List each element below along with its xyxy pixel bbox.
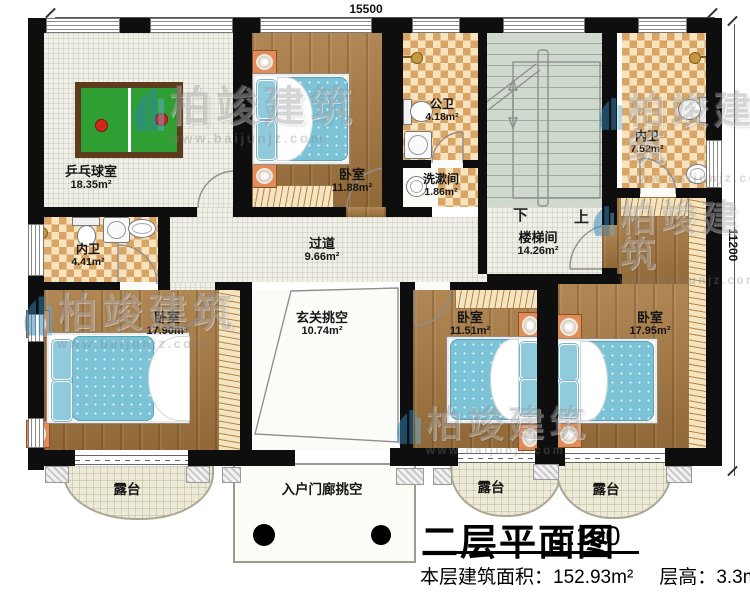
pier <box>186 466 210 483</box>
room-area: 11.88m² <box>332 182 372 195</box>
area-summary: 本层建筑面积：152.93m²层高：3.3m <box>420 562 750 589</box>
room-name: 卧室 <box>147 310 188 325</box>
room-label-washroom: 洗漱间 1.86m² <box>423 172 459 199</box>
window <box>260 18 372 33</box>
stair-railing <box>538 50 548 206</box>
room-name: 内卫 <box>630 129 663 143</box>
pier <box>666 466 692 483</box>
floor-height-value: 3.3m <box>716 567 750 588</box>
title-underline <box>423 551 639 554</box>
wall-divider <box>463 160 478 168</box>
floor-plan: 乒乓球室 18.35m² 卧室 11.88m² 公卫 4.18m² 洗漱间 1.… <box>0 0 750 596</box>
window <box>503 18 585 33</box>
room-name: 卧室 <box>332 167 372 182</box>
pier <box>45 466 69 483</box>
stair-down-label: 下 <box>513 204 528 225</box>
pier <box>533 464 559 480</box>
room-label-bedroom-top: 卧室 11.88m² <box>332 167 372 195</box>
room-area: 10.74m² <box>296 325 348 338</box>
room-name: 玄关挑空 <box>296 310 348 325</box>
porch-label: 入户门廊挑空 <box>282 478 363 498</box>
door-arc <box>570 225 605 269</box>
room-name: 内卫 <box>71 242 104 256</box>
wall-bottom <box>390 448 458 466</box>
room-name: 过道 <box>305 236 340 251</box>
window <box>638 18 687 33</box>
door-arc <box>118 245 157 284</box>
wall-divider <box>28 282 120 290</box>
dimension-line-top <box>55 17 715 18</box>
room-area: 18.35m² <box>65 179 117 192</box>
wall-divider <box>537 284 558 450</box>
room-label-bedroom-bc: 卧室 11.51m² <box>450 310 490 338</box>
area-summary-label: 本层建筑面积： <box>420 567 553 588</box>
wall-divider <box>28 207 197 217</box>
room-area: 1.86m² <box>423 186 459 198</box>
window <box>28 314 44 342</box>
room-label-bedroom-br: 卧室 17.95m² <box>630 310 671 338</box>
wall-divider <box>158 282 170 290</box>
dimension-height: 11200 <box>726 213 740 277</box>
room-area: 4.18m² <box>425 111 458 123</box>
wall-divider <box>400 282 415 290</box>
room-label-public-bath: 公卫 4.18m² <box>425 97 458 124</box>
stair-up-label: 上 <box>574 206 589 227</box>
terrace-label: 露台 <box>114 478 141 498</box>
wall-divider <box>676 188 706 198</box>
room-label-bath-right: 内卫 7.52m² <box>630 129 663 156</box>
wall-divider <box>400 290 413 450</box>
window <box>46 18 120 33</box>
room-name: 公卫 <box>425 97 458 111</box>
wall-bottom <box>28 450 75 466</box>
door-arc <box>432 132 463 163</box>
wall-divider <box>252 207 346 217</box>
room-name: 乒乓球室 <box>65 164 117 179</box>
wall-right <box>706 33 722 466</box>
room-label-bedroom-bl: 卧室 17.90m² <box>147 310 188 338</box>
wall-divider <box>617 188 640 198</box>
door-arc <box>198 171 235 208</box>
terrace-label: 露台 <box>593 478 620 498</box>
room-name: 洗漱间 <box>423 172 459 186</box>
door-arc <box>415 290 450 325</box>
plan-symbols <box>0 0 750 596</box>
wall-divider <box>158 217 170 290</box>
window <box>412 18 460 33</box>
room-label-pingpong: 乒乓球室 18.35m² <box>65 164 117 192</box>
floor-height-label: 层高： <box>659 567 716 588</box>
wall-divider <box>382 33 403 207</box>
wall-bottom <box>188 450 295 466</box>
sliding-door <box>75 455 188 465</box>
room-label-foyer-void: 玄关挑空 10.74m² <box>296 310 348 338</box>
room-area: 7.52m² <box>630 143 663 155</box>
room-label-stairwell: 楼梯间 14.26m² <box>518 230 559 258</box>
wall-divider <box>240 282 252 450</box>
stair-inner-outline <box>513 62 600 198</box>
wall-divider <box>403 160 431 168</box>
window <box>150 18 233 33</box>
room-area: 11.51m² <box>450 325 490 338</box>
room-area: 17.90m² <box>147 325 188 338</box>
area-summary-value: 152.93m² <box>553 567 633 588</box>
wall-divider <box>478 33 487 274</box>
sliding-door <box>458 453 535 463</box>
pier <box>222 467 241 483</box>
stair-break-line <box>484 64 540 110</box>
window <box>28 418 44 448</box>
wall-divider <box>602 33 617 225</box>
pier <box>433 468 452 485</box>
room-label-bath-left: 内卫 4.41m² <box>71 242 104 269</box>
room-area: 4.41m² <box>71 256 104 268</box>
room-area: 9.66m² <box>305 251 340 264</box>
wall-divider <box>487 274 622 284</box>
room-area: 14.26m² <box>518 245 559 258</box>
room-area: 17.95m² <box>630 325 671 338</box>
room-label-corridor: 过道 9.66m² <box>305 236 340 264</box>
scale-label: 1:100 <box>553 521 621 552</box>
dimension-width: 15500 <box>330 2 402 16</box>
room-name: 楼梯间 <box>518 230 559 245</box>
wall-divider <box>386 207 403 217</box>
pier <box>396 468 424 485</box>
sliding-door <box>565 453 665 463</box>
room-name: 卧室 <box>630 310 671 325</box>
window <box>706 140 722 188</box>
wall-bottom <box>665 448 722 466</box>
room-name: 卧室 <box>450 310 490 325</box>
window <box>28 224 44 276</box>
wall-divider <box>403 207 432 217</box>
wall-top <box>28 18 722 33</box>
wall-divider <box>233 33 252 217</box>
door-arc <box>640 158 676 194</box>
terrace-label: 露台 <box>478 476 505 496</box>
